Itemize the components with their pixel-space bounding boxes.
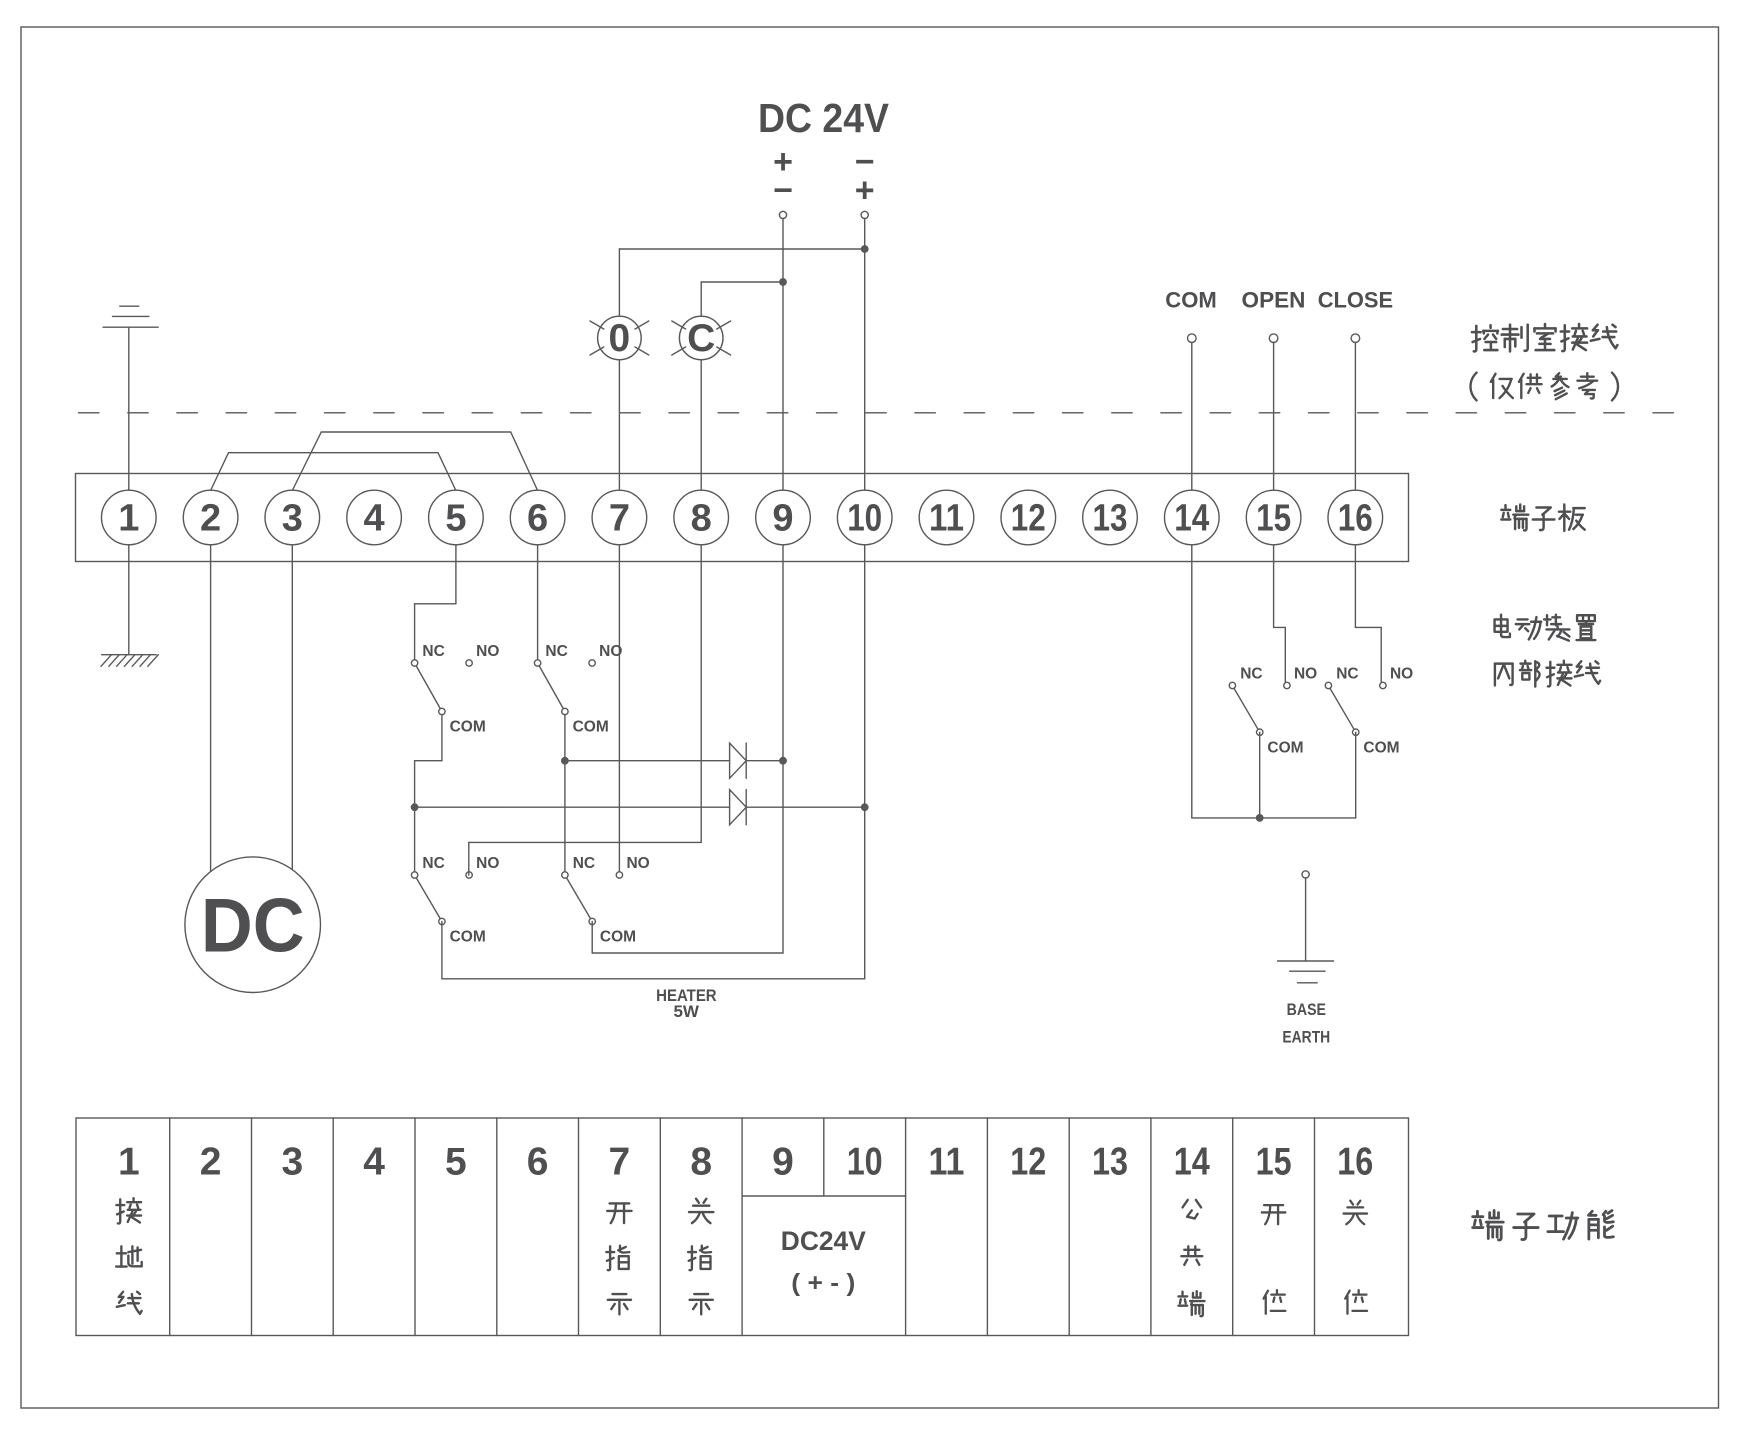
svg-text:0: 0: [609, 317, 631, 360]
svg-text:EARTH: EARTH: [1282, 1028, 1330, 1047]
svg-text:NC: NC: [545, 643, 567, 660]
svg-text:NO: NO: [1294, 665, 1317, 682]
svg-text:NC: NC: [573, 855, 595, 872]
svg-text:NC: NC: [422, 855, 444, 872]
svg-text:1: 1: [118, 1141, 140, 1184]
svg-text:12: 12: [1010, 1141, 1046, 1184]
svg-text:CLOSE: CLOSE: [1318, 288, 1393, 313]
svg-text:COM: COM: [450, 929, 486, 946]
svg-text:NO: NO: [1390, 665, 1413, 682]
svg-text:C: C: [687, 317, 715, 360]
svg-text:15: 15: [1256, 497, 1291, 539]
svg-text:NO: NO: [476, 643, 499, 660]
svg-text:NC: NC: [1336, 665, 1358, 682]
svg-text:14: 14: [1174, 1141, 1210, 1184]
svg-text:NC: NC: [1240, 665, 1262, 682]
svg-text:+: +: [855, 171, 875, 209]
svg-text:3: 3: [281, 1141, 303, 1184]
svg-text:12: 12: [1011, 497, 1046, 539]
svg-text:2: 2: [200, 497, 221, 539]
svg-text:NO: NO: [476, 855, 499, 872]
svg-text:6: 6: [527, 497, 548, 539]
svg-text:3: 3: [282, 497, 303, 539]
svg-text:16: 16: [1337, 1141, 1373, 1184]
svg-text:7: 7: [609, 497, 630, 539]
svg-text:8: 8: [691, 497, 712, 539]
svg-text:NO: NO: [626, 855, 649, 872]
svg-text:15: 15: [1256, 1141, 1292, 1184]
svg-text:13: 13: [1093, 497, 1128, 539]
svg-text:NC: NC: [422, 643, 444, 660]
svg-text:BASE: BASE: [1287, 1000, 1326, 1019]
svg-text:4: 4: [364, 497, 385, 539]
svg-text:( + - ): ( + - ): [791, 1269, 855, 1297]
svg-text:6: 6: [527, 1141, 549, 1184]
svg-text:5: 5: [445, 497, 466, 539]
svg-text:9: 9: [772, 1141, 794, 1184]
svg-text:DC: DC: [201, 884, 305, 969]
svg-text:11: 11: [929, 1141, 965, 1184]
svg-text:7: 7: [609, 1141, 631, 1184]
svg-text:COM: COM: [600, 929, 636, 946]
svg-text:COM: COM: [573, 719, 609, 736]
svg-text:16: 16: [1338, 497, 1373, 539]
svg-text:COM: COM: [1267, 739, 1303, 756]
svg-text:4: 4: [363, 1141, 385, 1184]
svg-text:9: 9: [772, 497, 793, 539]
svg-text:−: −: [773, 172, 793, 210]
svg-text:COM: COM: [450, 719, 486, 736]
svg-text:10: 10: [847, 1141, 883, 1184]
svg-text:1: 1: [118, 497, 139, 539]
svg-text:5W: 5W: [673, 1002, 699, 1021]
svg-text:2: 2: [200, 1141, 222, 1184]
svg-text:COM: COM: [1363, 739, 1399, 756]
svg-text:10: 10: [847, 497, 882, 539]
svg-text:DC24V: DC24V: [781, 1226, 866, 1256]
svg-text:OPEN: OPEN: [1242, 288, 1306, 313]
svg-text:11: 11: [929, 497, 964, 539]
svg-text:5: 5: [445, 1141, 467, 1184]
svg-text:DC 24V: DC 24V: [758, 95, 890, 141]
svg-text:13: 13: [1092, 1141, 1128, 1184]
svg-text:COM: COM: [1165, 288, 1217, 313]
svg-text:14: 14: [1174, 497, 1209, 539]
svg-text:8: 8: [690, 1141, 712, 1184]
